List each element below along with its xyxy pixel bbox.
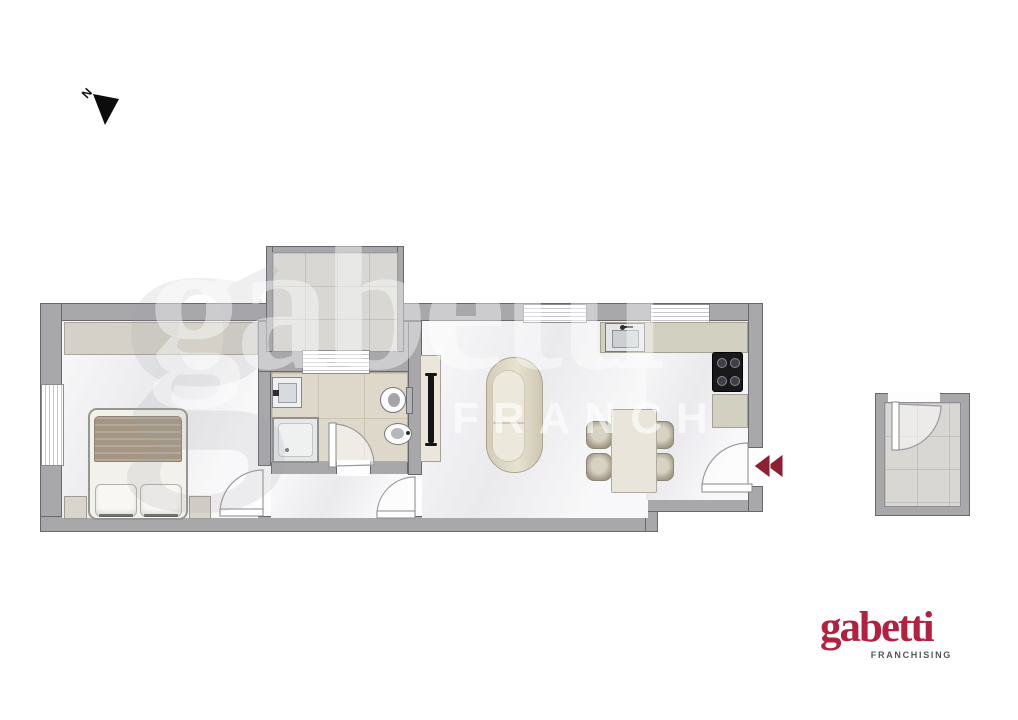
kitchen-sink-basin: [612, 330, 639, 348]
bed-blanket: [94, 416, 182, 462]
brand-logo: gabetti FRANCHISING: [820, 608, 952, 660]
storage-door-opening: [888, 393, 940, 402]
dining-table: [611, 409, 657, 493]
dining-chair: [586, 453, 612, 481]
pillow: [95, 484, 137, 517]
nightstand: [189, 496, 211, 519]
chevron-left-icon: [754, 454, 770, 478]
sofa-cushion-split: [492, 422, 525, 424]
burner: [717, 358, 727, 368]
burner: [717, 376, 727, 386]
kitchen-window: [650, 304, 710, 323]
kitchen-sink: [605, 323, 645, 352]
north-label: N: [79, 85, 95, 101]
entry-direction-chevrons-icon: [753, 452, 787, 485]
burner: [730, 358, 740, 368]
bidet-bowl: [391, 428, 404, 439]
logo-tagline: FRANCHISING: [820, 650, 952, 660]
tv-cabinet: [420, 355, 441, 462]
logo-wordmark: gabetti: [820, 608, 952, 649]
balcony-window-door: [302, 350, 370, 374]
faucet-icon: [406, 431, 410, 435]
storage-room-floor: [884, 402, 961, 507]
stove: [712, 352, 743, 392]
washbasin-bowl: [278, 383, 297, 403]
shower-tray: [278, 423, 313, 457]
bathroom-door-opening: [337, 460, 370, 476]
north-triangle: [93, 94, 119, 125]
balcony-wall-right: [397, 246, 404, 352]
tv: [428, 375, 434, 443]
faucet-icon: [273, 390, 279, 396]
wall-right: [748, 303, 763, 448]
floor-plan-canvas: g gabetti FRANCH N gabetti FRANCHISING: [0, 0, 1018, 720]
toilet-seat: [388, 393, 400, 407]
living-window: [523, 304, 587, 323]
dining-chair: [586, 421, 612, 449]
living-door-opening: [408, 475, 422, 512]
north-arrow-icon: N: [78, 80, 128, 135]
nightstand: [64, 496, 87, 519]
wall-right-lower: [748, 486, 763, 512]
hallway-floor: [271, 474, 408, 518]
burner: [730, 376, 740, 386]
pillow: [140, 484, 182, 517]
bed-frame: [144, 514, 178, 517]
sofa-seat: [492, 370, 525, 462]
tv: [425, 373, 437, 376]
wall-bottom-right: [645, 499, 763, 512]
shower-drain: [285, 448, 289, 452]
bed-frame: [99, 514, 133, 517]
sofa: [486, 357, 543, 473]
double-bed: [88, 408, 188, 520]
toilet: [380, 386, 414, 416]
bidet: [384, 423, 412, 445]
kitchen-counter-side: [712, 394, 748, 428]
balcony-floor: [272, 252, 398, 352]
toilet-tank: [406, 387, 413, 414]
washbasin: [272, 377, 302, 408]
faucet-icon: [624, 326, 633, 328]
wardrobe: [64, 322, 258, 355]
tv: [425, 443, 437, 446]
bedroom-door-opening: [258, 466, 271, 516]
shower: [272, 417, 319, 463]
bedroom-window: [41, 384, 64, 466]
